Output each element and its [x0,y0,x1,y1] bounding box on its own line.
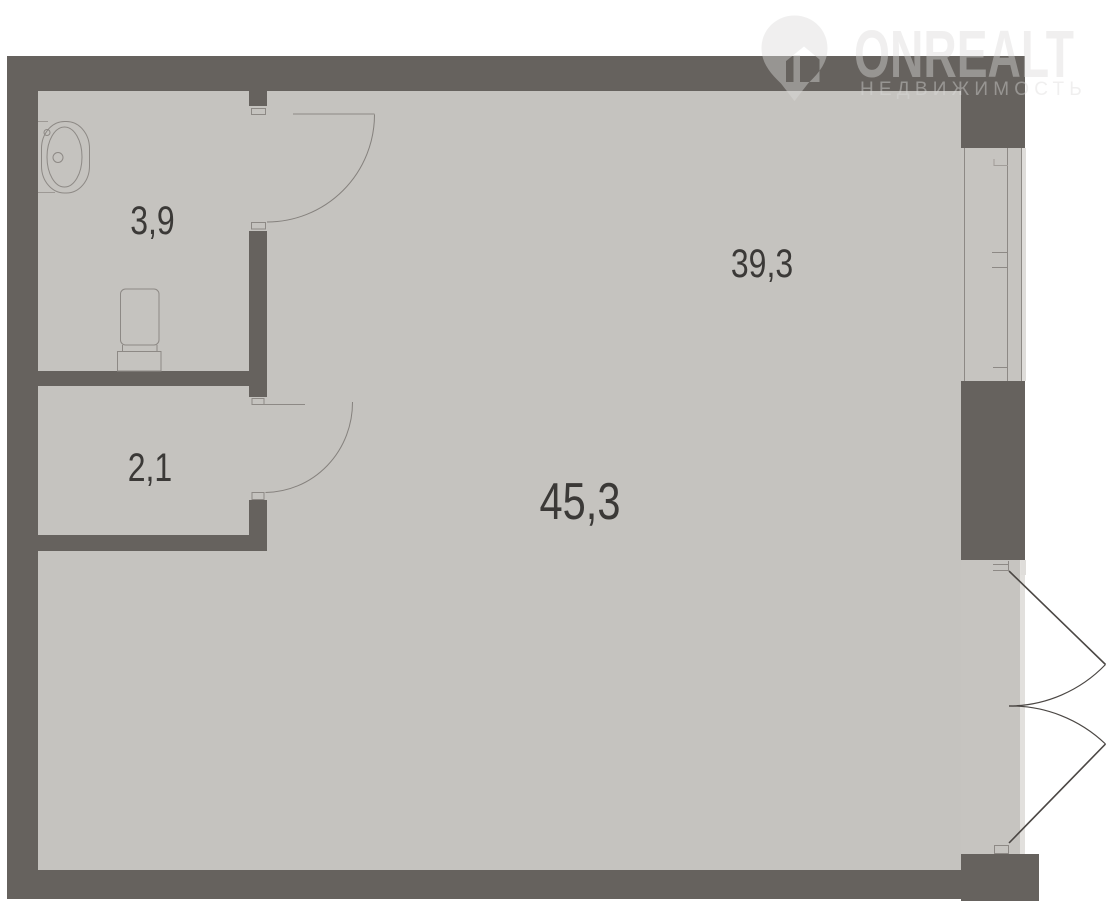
svg-text:45,3: 45,3 [540,472,621,531]
svg-text:39,3: 39,3 [731,241,793,286]
svg-text:2,1: 2,1 [128,445,172,490]
svg-text:НЕДВИЖИМОСТЬ: НЕДВИЖИМОСТЬ [860,79,1087,100]
svg-text:3,9: 3,9 [130,198,174,243]
